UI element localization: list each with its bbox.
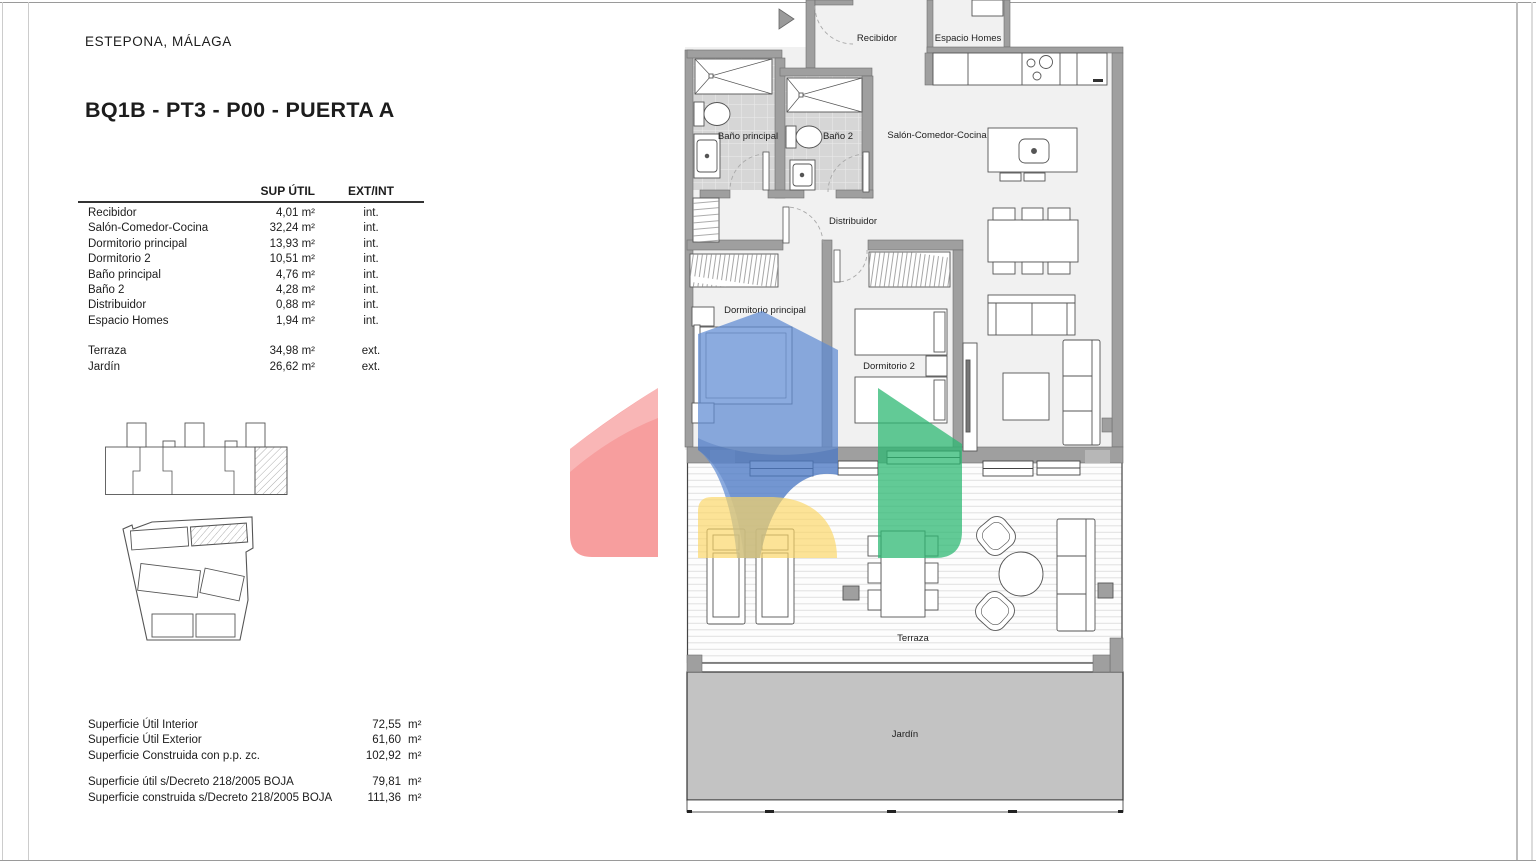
total-row: Superficie Útil Exterior61,60m² [88, 733, 440, 748]
total-row: Superficie útil s/Decreto 218/2005 BOJA7… [88, 775, 440, 790]
table-row: Recibidor4,01 m²int. [78, 206, 424, 221]
area-table: SUP ÚTIL EXT/INT Recibidor4,01 m²int. Sa… [78, 183, 424, 375]
total-row: Superficie Construida con p.p. zc.102,92… [88, 749, 440, 764]
col-ext-int: EXT/INT [315, 183, 427, 199]
table-row: Baño 24,28 m²int. [78, 283, 424, 298]
kitchen-counter [933, 53, 1107, 85]
floor-plan: Recibidor Espacio Homes Baño principal B… [560, 0, 1140, 820]
table-rule [78, 201, 424, 203]
label-recibidor: Recibidor [857, 33, 897, 44]
table-row: Salón-Comedor-Cocina32,24 m²int. [78, 221, 424, 236]
highlighted-site-block [190, 523, 247, 546]
location-label: ESTEPONA, MÁLAGA [85, 34, 232, 49]
table-row: Dormitorio 210,51 m²int. [78, 252, 424, 267]
label-terraza: Terraza [897, 633, 929, 644]
page-title: BQ1B - PT3 - P00 - PUERTA A [85, 98, 395, 123]
table-row: Jardín26,62 m²ext. [78, 360, 424, 375]
table-row: Espacio Homes1,94 m²int. [78, 314, 424, 329]
table-row: Terraza34,98 m²ext. [78, 344, 424, 359]
totals-block: Superficie Útil Interior72,55m² Superfic… [88, 718, 440, 806]
entry-arrow-icon [779, 9, 794, 29]
col-sup-util: SUP ÚTIL [253, 183, 315, 199]
label-espacio-homes: Espacio Homes [935, 33, 1002, 44]
label-distribuidor: Distribuidor [829, 216, 877, 227]
label-salon: Salón-Comedor-Cocina [887, 130, 987, 141]
page-border-right-outer [1531, 2, 1533, 860]
total-row: Superficie construida s/Decreto 218/2005… [88, 791, 440, 806]
area-table-header: SUP ÚTIL EXT/INT [78, 183, 424, 199]
page-border-right-inner [1516, 2, 1518, 860]
label-dormitorio-2: Dormitorio 2 [863, 361, 915, 372]
label-bano-2: Baño 2 [823, 131, 853, 142]
key-plan-building [100, 418, 292, 500]
page-border-bottom [0, 860, 1536, 861]
highlighted-block [255, 447, 287, 495]
key-plan-site [115, 510, 263, 650]
plan-sheet: { "page": { "location": "ESTEPONA, MÁLAG… [0, 0, 1536, 864]
table-row: Baño principal4,76 m²int. [78, 268, 424, 283]
table-row: Dormitorio principal13,93 m²int. [78, 237, 424, 252]
page-border-left-inner [28, 2, 29, 860]
label-jardin: Jardín [892, 729, 918, 740]
total-row: Superficie Útil Interior72,55m² [88, 718, 440, 733]
table-row: Distribuidor0,88 m²int. [78, 298, 424, 313]
label-bano-principal: Baño principal [718, 131, 778, 142]
garden-edge-strip [687, 800, 1123, 812]
page-border-left-outer [2, 2, 3, 860]
